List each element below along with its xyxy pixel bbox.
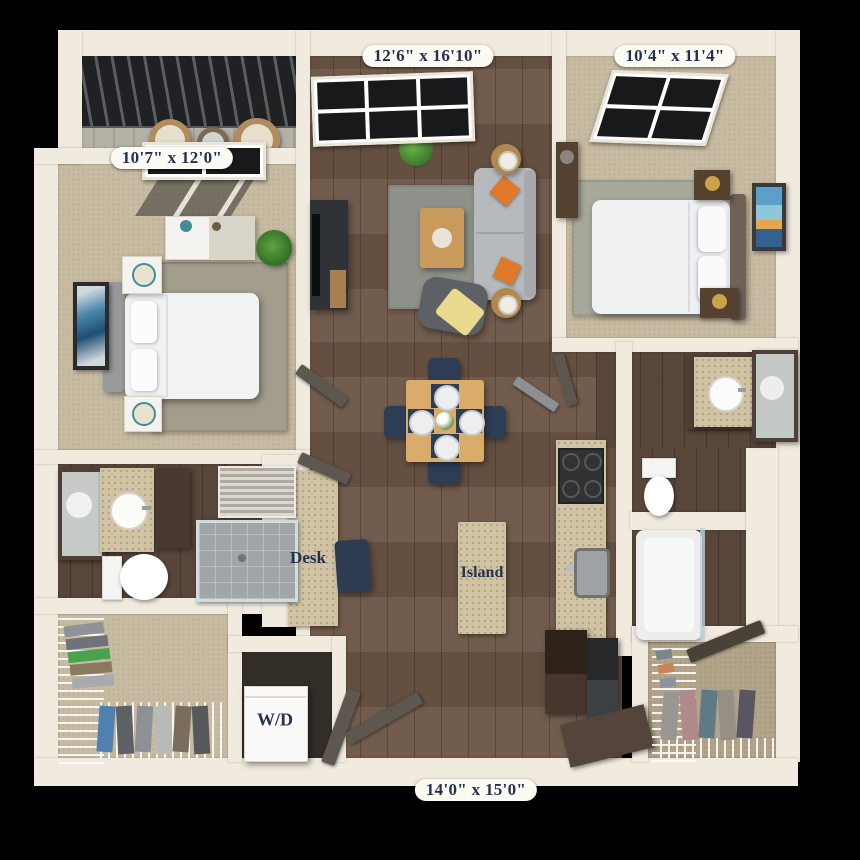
closet-1-hanging-clothes [96, 705, 115, 752]
tv-console-shelf [330, 270, 346, 308]
wall-outer-left [34, 148, 58, 786]
bedroom-2-lamp-gold [705, 176, 720, 191]
wall-balcony-left [58, 30, 82, 164]
desk-label: Desk [290, 548, 326, 568]
bedroom-1-pillow [131, 301, 157, 343]
bedroom-2-pillow [698, 206, 726, 252]
bath-2-shower-glass [700, 528, 705, 642]
closet-1-hanging-clothes [154, 706, 172, 755]
bedroom-2-dimensions-label: 10'4" x 11'4" [614, 45, 735, 67]
kitchen-sink [574, 548, 610, 598]
kitchen-tall-cabinet [545, 630, 587, 714]
tv-screen [312, 214, 320, 296]
bedroom-1-lamp [132, 263, 156, 287]
bath-2-sink [708, 376, 744, 412]
kitchen-burner [562, 453, 580, 471]
bath-2-toilet-tank [642, 458, 676, 478]
bath-1-toilet-tank [102, 556, 122, 600]
wall-laundry-left [228, 600, 242, 762]
wall-laundry-top [228, 636, 346, 652]
sofa-cushion-divider [476, 232, 524, 234]
overall-dimensions-label: 14'0" x 15'0" [415, 779, 537, 801]
apartment-floor-plan: 12'6" x 16'10" 10'4" x 11'4" 10'7" x 12'… [0, 0, 860, 860]
bedroom-2-window [589, 70, 729, 146]
bath-1-toilet-bowl [120, 554, 168, 600]
wall-kitchen-bath2 [616, 342, 632, 656]
bedroom-1-dresser [165, 216, 255, 260]
dining-centerpiece [436, 412, 454, 430]
bath-2-toilet-bowl [644, 476, 674, 516]
kitchen-burner [584, 480, 602, 498]
bedroom-1-dimensions-label: 10'7" x 12'0" [111, 147, 233, 169]
refrigerator [587, 638, 618, 718]
closet-2-hanging-clothes [698, 690, 717, 739]
dining-plate [434, 435, 460, 461]
bedroom-1-dresser-decor [212, 222, 221, 231]
sofa-back [524, 170, 536, 298]
bath-1-shower-drain [238, 554, 246, 562]
bath-1-mirror-reflection [66, 492, 92, 518]
side-table-lamp [498, 295, 518, 315]
bedroom-2-dresser-decor [560, 150, 574, 164]
dining-plate [409, 410, 435, 436]
kitchen-burner [584, 453, 602, 471]
washer-dryer-label: W/D [257, 710, 293, 731]
linen-closet-louver-doors [218, 466, 296, 518]
bedroom-1-dresser-vase [180, 220, 192, 232]
bedroom-1-wall-art [73, 282, 109, 370]
kitchen-burner [562, 480, 580, 498]
bath-2-tub-basin [644, 538, 694, 632]
coffee-table-tray [432, 228, 452, 248]
island-label: Island [461, 564, 504, 582]
bedroom-2-duvet-fold [688, 202, 690, 312]
closet-1-hanging-clothes [192, 706, 210, 755]
wall-bedroom1-right [296, 30, 310, 464]
bath-2-mirror-reflection [760, 376, 784, 400]
bedroom-1-plant [256, 230, 292, 266]
washer-dryer-top-seam [244, 696, 306, 698]
closet-1-hanging-clothes [172, 705, 191, 752]
dining-plate [434, 385, 460, 411]
bath-1-shower [196, 520, 298, 602]
closet-2-shelving-bottom [660, 738, 776, 758]
dining-plate [459, 410, 485, 436]
side-table-lamp [498, 151, 518, 171]
bath-1-cabinet [156, 468, 190, 548]
bedroom-2-lamp-gold [712, 294, 727, 309]
bath-1-faucet [142, 506, 151, 510]
living-room-window [311, 71, 475, 147]
closet-1-hanging-clothes [135, 706, 153, 753]
wall-bath2-partition [630, 512, 748, 530]
bedroom-1-lamp [132, 402, 156, 426]
closet-2-hanging-clothes [660, 692, 679, 741]
bedroom-1-pillow [131, 349, 157, 391]
closet-2-hanging-clothes [679, 690, 698, 741]
closet-2-hanging-clothes [717, 690, 736, 741]
wall-bath2-right-mass [746, 448, 778, 630]
living-room-dimensions-label: 12'6" x 16'10" [362, 45, 493, 67]
closet-2-hanging-clothes [736, 690, 755, 739]
bedroom-2-wall-art [752, 183, 786, 251]
closet-2-shoes [660, 677, 677, 688]
wall-outer-bottom [34, 758, 798, 786]
bath-2-faucet [738, 388, 746, 392]
bath-1-sink [110, 492, 148, 530]
bedroom-1-duvet-fold [166, 295, 168, 397]
desk-chair [334, 539, 372, 593]
kitchen-faucet [566, 564, 574, 572]
closet-1-hanging-clothes [116, 706, 134, 755]
